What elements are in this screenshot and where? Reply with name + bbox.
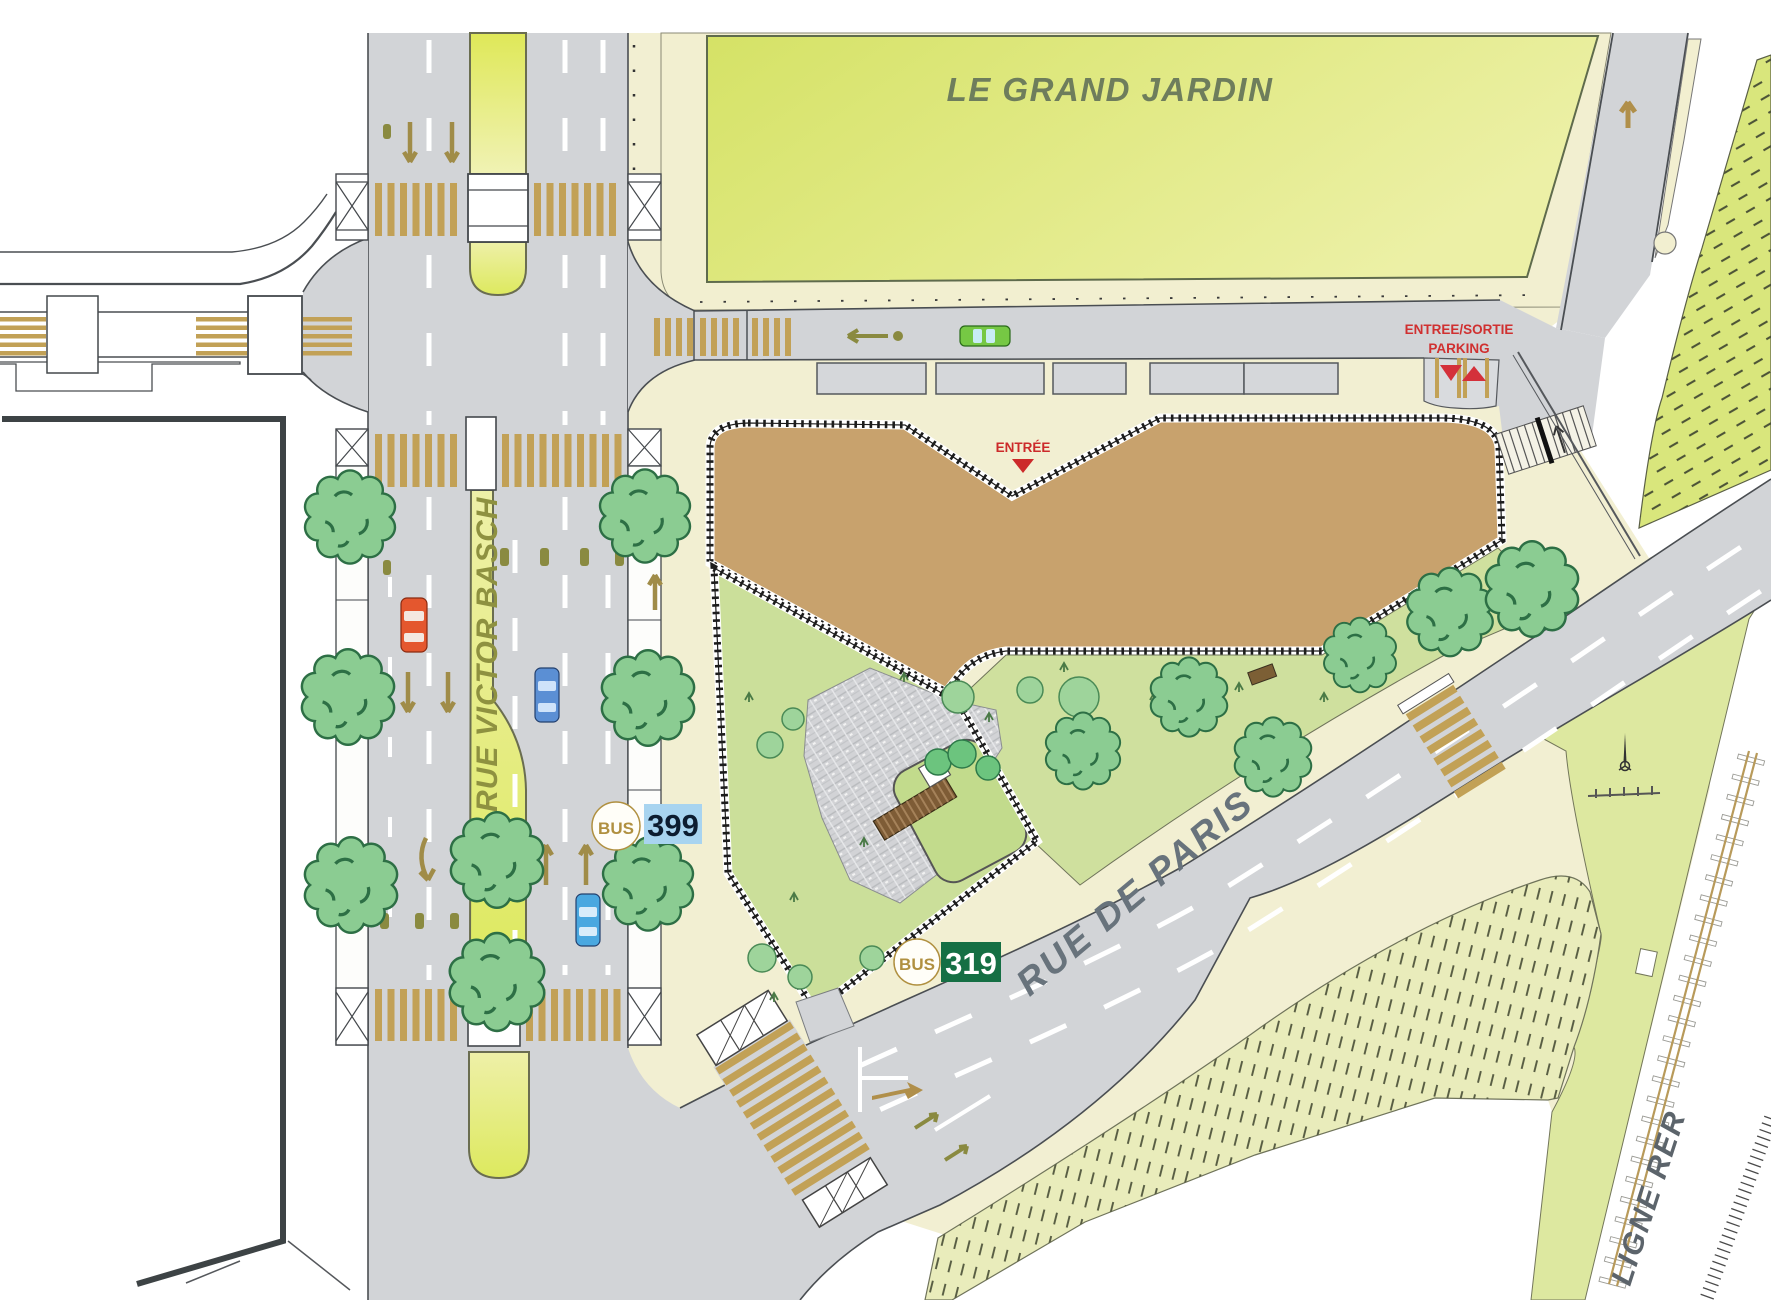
svg-text:PARKING: PARKING	[1428, 341, 1489, 356]
svg-text:ENTREE/SORTIE: ENTREE/SORTIE	[1405, 322, 1514, 337]
svg-text:BUS: BUS	[598, 819, 634, 838]
svg-text:399: 399	[647, 808, 699, 843]
svg-text:319: 319	[945, 946, 997, 981]
svg-text:RUE VICTOR BASCH: RUE VICTOR BASCH	[471, 496, 504, 812]
svg-text:ENTRÉE: ENTRÉE	[996, 440, 1051, 455]
svg-text:BUS: BUS	[899, 955, 935, 974]
svg-text:LE GRAND JARDIN: LE GRAND JARDIN	[947, 71, 1274, 108]
